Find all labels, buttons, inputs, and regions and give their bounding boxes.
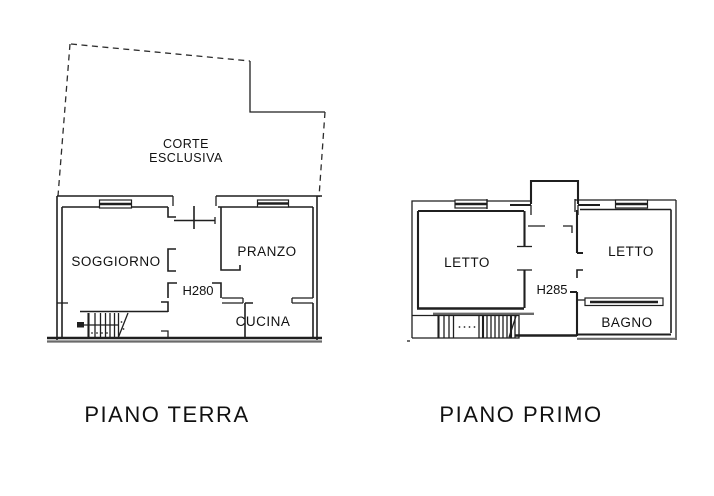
entry-door-symbol (174, 206, 215, 229)
room-label-bathroom: BAGNO (601, 315, 652, 330)
ground-floor-staircase (77, 312, 168, 338)
room-label-bedroom-right: LETTO (608, 244, 654, 259)
first-floor-window-left (455, 199, 487, 209)
ground-floor-plan: CORTE ESCLUSIVA SOGGIORNO PRANZO H280 CU… (47, 44, 325, 427)
room-label-bedroom-left: LETTO (444, 255, 490, 270)
first-floor-staircase (412, 316, 519, 339)
caption-first-floor: PIANO PRIMO (439, 402, 602, 427)
ground-floor-window-left (100, 200, 132, 208)
first-floor-plan: LETTO LETTO H285 BAGNO PIANO PRIMO (407, 181, 676, 427)
courtyard-boundary (58, 44, 325, 197)
floor-plan-drawing: CORTE ESCLUSIVA SOGGIORNO PRANZO H280 CU… (0, 0, 714, 496)
ground-floor-window-right (258, 200, 289, 207)
height-label-ground: H280 (182, 283, 213, 298)
room-label-living: SOGGIORNO (71, 254, 160, 269)
room-label-dining: PRANZO (237, 244, 296, 259)
courtyard-label-line2: ESCLUSIVA (149, 151, 223, 165)
courtyard-label-line1: CORTE (163, 137, 209, 151)
caption-ground-floor: PIANO TERRA (84, 402, 249, 427)
floor-plan-page: CORTE ESCLUSIVA SOGGIORNO PRANZO H280 CU… (0, 0, 714, 496)
height-label-first: H285 (536, 282, 567, 297)
room-label-kitchen: CUCINA (236, 314, 291, 329)
first-floor-window-right (616, 200, 648, 208)
